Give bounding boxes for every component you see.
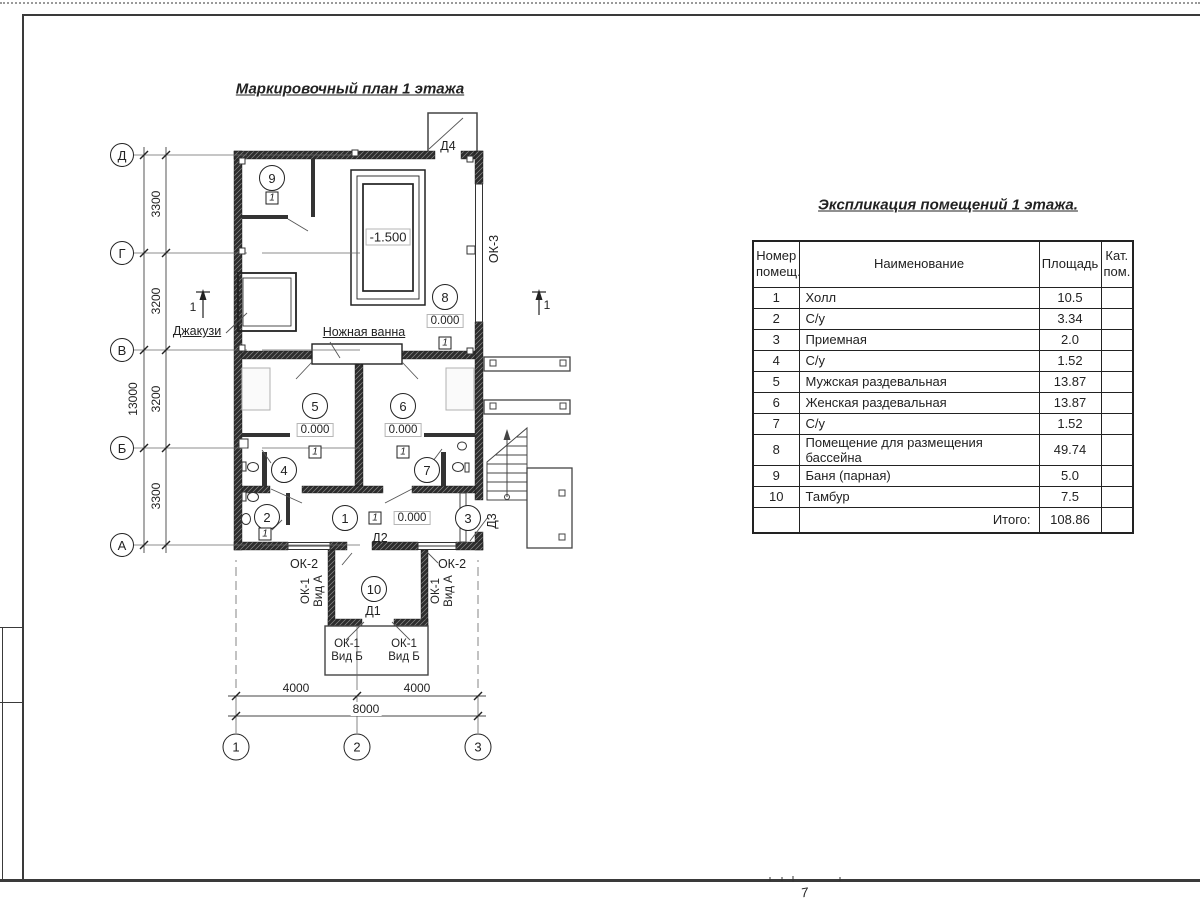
sink-icon xyxy=(458,442,467,450)
dim-3300-top: 3300 xyxy=(149,189,163,220)
toilet-icon xyxy=(453,463,464,472)
level-mark-zero: 0.000 xyxy=(427,314,464,328)
room-bubble-4: 4 xyxy=(271,457,297,483)
table-cell xyxy=(1101,287,1133,308)
axis-bubble-v: В xyxy=(110,338,134,362)
table-cell xyxy=(1101,486,1133,507)
drawing-sheet: Маркировочный план 1 этажа Экспликация п… xyxy=(0,0,1200,900)
table-cell: 4 xyxy=(753,350,799,371)
table-cell: 5 xyxy=(753,371,799,392)
room-bubble-2: 2 xyxy=(254,504,280,530)
level-mark-zero: 0.000 xyxy=(394,511,431,525)
jacuzzi-label: Джакузи xyxy=(173,324,221,338)
room-number: 3 xyxy=(464,511,471,526)
door-label-d1: Д1 xyxy=(365,604,380,618)
room-number: 10 xyxy=(367,582,381,597)
table-cell: 3.34 xyxy=(1039,308,1101,329)
type-marker: 1 xyxy=(369,512,382,525)
table-cell: 7 xyxy=(753,413,799,434)
room-number: 5 xyxy=(311,399,318,414)
table-cell xyxy=(1101,350,1133,371)
section-arrows xyxy=(196,289,546,318)
table-body: 1Холл10.52С/у3.343Приемная2.04С/у1.525Му… xyxy=(753,287,1133,507)
table-cell: 7.5 xyxy=(1039,486,1101,507)
axis-label: 1 xyxy=(232,740,239,755)
table-cell: Приемная xyxy=(799,329,1039,350)
room-bubble-3: 3 xyxy=(455,505,481,531)
axis-label: Д xyxy=(118,148,127,163)
room-number: 1 xyxy=(341,511,348,526)
dim-3200-upper: 3200 xyxy=(149,286,163,317)
window-label-ok1-vid-a-left: ОК-1 Вид А xyxy=(300,567,326,615)
table-row: 9Баня (парная)5.0 xyxy=(753,465,1133,486)
frame-ticks xyxy=(770,876,840,882)
window-label-ok1-vid-b-left: ОК-1 Вид Б xyxy=(321,638,373,664)
room-number: 7 xyxy=(423,463,430,478)
toilet-icon xyxy=(248,493,259,502)
stairs xyxy=(487,428,527,500)
room-bubble-7: 7 xyxy=(414,457,440,483)
level-mark-pool: -1.500 xyxy=(366,229,411,246)
table-row: 4С/у1.52 xyxy=(753,350,1133,371)
axis-label: 3 xyxy=(474,740,481,755)
window-label-ok1-vid-a-right: ОК-1 Вид А xyxy=(430,567,456,615)
table-cell: Тамбур xyxy=(799,486,1039,507)
window-label-ok1-vid-b-right: ОК-1 Вид Б xyxy=(378,638,430,664)
dim-8000-total: 8000 xyxy=(351,702,382,716)
axis-bubble-a: А xyxy=(110,533,134,557)
type-marker: 1 xyxy=(266,192,279,205)
table-footer: Итого: 108.86 xyxy=(753,507,1133,533)
plan-title: Маркировочный план 1 этажа xyxy=(236,81,464,98)
toilet-icon xyxy=(248,463,259,472)
table-cell: 1.52 xyxy=(1039,350,1101,371)
axis-bubble-d: Д xyxy=(110,143,134,167)
table-cell: 1 xyxy=(753,287,799,308)
jacuzzi xyxy=(238,273,296,331)
axis-bubble-2: 2 xyxy=(344,734,371,761)
table-cell: 10.5 xyxy=(1039,287,1101,308)
col-header-name: Наименование xyxy=(799,241,1039,287)
room-number: 4 xyxy=(280,463,287,478)
table-total-row: Итого: 108.86 xyxy=(753,507,1133,533)
axis-bubble-1: 1 xyxy=(223,734,250,761)
sink-icon xyxy=(242,514,251,525)
room-bubble-10: 10 xyxy=(361,576,387,602)
table-cell: 9 xyxy=(753,465,799,486)
table-cell: 13.87 xyxy=(1039,371,1101,392)
axis-label: 2 xyxy=(353,740,360,755)
room-bubble-5: 5 xyxy=(302,393,328,419)
col-header-area: Площадь xyxy=(1039,241,1101,287)
table-cell: Мужская раздевальная xyxy=(799,371,1039,392)
table-cell xyxy=(753,507,799,533)
dim-3300-bottom: 3300 xyxy=(149,481,163,512)
section-mark-left: 1 xyxy=(190,300,197,314)
table-cell: 8 xyxy=(753,434,799,465)
table-cell: Помещение для размещения бассейна xyxy=(799,434,1039,465)
table-cell xyxy=(1101,413,1133,434)
table-row: 1Холл10.5 xyxy=(753,287,1133,308)
table-cell xyxy=(1101,329,1133,350)
table-cell: Женская раздевальная xyxy=(799,392,1039,413)
table-row: 6Женская раздевальная13.87 xyxy=(753,392,1133,413)
table-row: 5Мужская раздевальная13.87 xyxy=(753,371,1133,392)
room-bubble-6: 6 xyxy=(390,393,416,419)
table-cell: 5.0 xyxy=(1039,465,1101,486)
table-cell: 13.87 xyxy=(1039,392,1101,413)
table-title: Экспликация помещений 1 этажа. xyxy=(818,197,1078,214)
window-label-ok3: ОК-3 xyxy=(487,235,501,263)
axis-bubble-3: 3 xyxy=(465,734,492,761)
table-cell: С/у xyxy=(799,350,1039,371)
table-header: Номер помещ. Наименование Площадь Кат. п… xyxy=(753,241,1133,287)
axis-bubble-g: Г xyxy=(110,241,134,265)
table-cell: С/у xyxy=(799,308,1039,329)
type-marker: 1 xyxy=(439,337,452,350)
axis-label: Б xyxy=(118,441,127,456)
room-number: 6 xyxy=(399,399,406,414)
level-mark-zero: 0.000 xyxy=(297,423,334,437)
room-bubble-9: 9 xyxy=(259,165,285,191)
dim-13000-total: 13000 xyxy=(126,380,140,417)
table-cell: 2 xyxy=(753,308,799,329)
table-row: 7С/у1.52 xyxy=(753,413,1133,434)
dim-4000-left: 4000 xyxy=(281,681,312,695)
dim-3200-lower: 3200 xyxy=(149,384,163,415)
type-marker: 1 xyxy=(259,528,272,541)
axis-label: Г xyxy=(118,246,125,261)
level-mark-zero: 0.000 xyxy=(385,423,422,437)
section-mark-right: 1 xyxy=(544,298,551,312)
table-cell xyxy=(1101,392,1133,413)
table-cell: 49.74 xyxy=(1039,434,1101,465)
axis-label: В xyxy=(118,343,127,358)
table-cell: Баня (парная) xyxy=(799,465,1039,486)
foot-bath-label: Ножная ванна xyxy=(323,325,406,339)
foot-bath xyxy=(312,344,402,364)
total-label: Итого: xyxy=(799,507,1039,533)
table-cell: 1.52 xyxy=(1039,413,1101,434)
table-row: 8Помещение для размещения бассейна49.74 xyxy=(753,434,1133,465)
axis-bubble-b: Б xyxy=(110,436,134,460)
table-cell: 3 xyxy=(753,329,799,350)
room-bubble-1: 1 xyxy=(332,505,358,531)
table-cell xyxy=(1101,507,1133,533)
room-number: 9 xyxy=(268,171,275,186)
table-cell: 6 xyxy=(753,392,799,413)
col-header-category: Кат. пом. xyxy=(1101,241,1133,287)
ramps xyxy=(484,357,570,414)
door-label-d4: Д4 xyxy=(440,139,455,153)
type-marker: 1 xyxy=(309,446,322,459)
table-row: 10Тамбур7.5 xyxy=(753,486,1133,507)
total-value: 108.86 xyxy=(1039,507,1101,533)
sink-icon xyxy=(239,439,248,448)
col-header-number: Номер помещ. xyxy=(753,241,799,287)
explication-table: Номер помещ. Наименование Площадь Кат. п… xyxy=(752,240,1134,534)
table-cell: 2.0 xyxy=(1039,329,1101,350)
door-label-d2: Д2 xyxy=(372,531,387,545)
table-cell: Холл xyxy=(799,287,1039,308)
dim-4000-right: 4000 xyxy=(402,681,433,695)
table-row: 2С/у3.34 xyxy=(753,308,1133,329)
axis-label: А xyxy=(118,538,127,553)
door-label-d3: Д3 xyxy=(485,513,499,528)
table-cell: С/у xyxy=(799,413,1039,434)
table-cell xyxy=(1101,434,1133,465)
table-cell xyxy=(1101,371,1133,392)
table-cell: 10 xyxy=(753,486,799,507)
table-cell xyxy=(1101,465,1133,486)
table-cell xyxy=(1101,308,1133,329)
table-row: 3Приемная2.0 xyxy=(753,329,1133,350)
type-marker: 1 xyxy=(397,446,410,459)
entrance-porch xyxy=(527,468,572,548)
room-bubble-8: 8 xyxy=(432,284,458,310)
room-number: 8 xyxy=(441,290,448,305)
room-number: 2 xyxy=(263,510,270,525)
